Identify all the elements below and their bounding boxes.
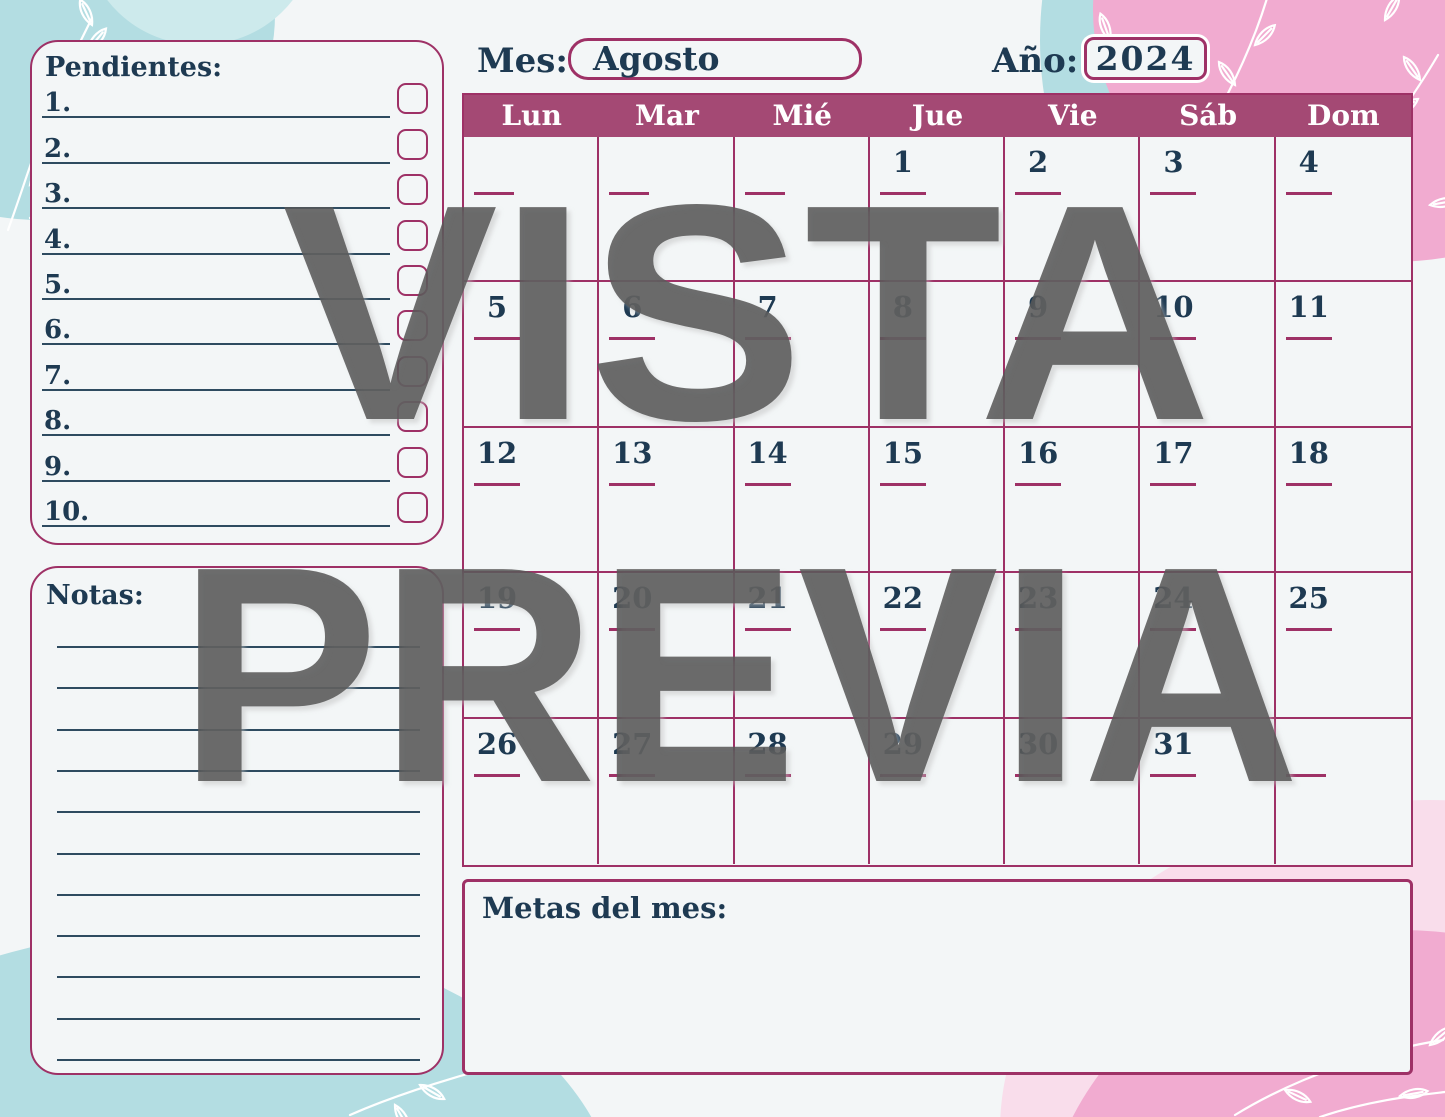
day-underline — [1015, 192, 1061, 195]
month-label: Mes: — [477, 44, 568, 78]
day-number: 13 — [609, 433, 655, 474]
calendar-day-cell[interactable]: 12 — [464, 428, 599, 573]
day-underline — [745, 337, 791, 340]
todo-item-checkbox[interactable] — [397, 174, 428, 205]
calendar-day-cell[interactable]: 18 — [1276, 428, 1411, 573]
todo-item-number: 7. — [44, 363, 71, 389]
calendar-day-cell[interactable]: 22 — [870, 573, 1005, 718]
weekday-header: Mar — [599, 95, 734, 137]
notes-panel-title: Notas: — [46, 580, 144, 611]
calendar-day-cell[interactable]: 3 — [1140, 137, 1275, 282]
calendar-day-cell[interactable]: 28 — [735, 719, 870, 864]
calendar-day-cell[interactable]: 30 — [1005, 719, 1140, 864]
todo-item-number: 9. — [44, 454, 71, 480]
day-number: 14 — [745, 433, 791, 474]
day-underline — [1015, 337, 1061, 340]
day-underline — [1150, 483, 1196, 486]
monthly-planner-page: Mes: Agosto Año: 2024 Pendientes: 1.2.3.… — [0, 0, 1445, 1117]
calendar-day-cell[interactable]: 8 — [870, 282, 1005, 427]
day-underline — [880, 337, 926, 340]
day-number: 18 — [1286, 433, 1332, 474]
calendar-day-cell[interactable]: 26 — [464, 719, 599, 864]
todo-item-checkbox[interactable] — [397, 129, 428, 160]
day-number: 22 — [880, 578, 926, 619]
calendar-day-cell[interactable]: 6 — [599, 282, 734, 427]
year-field[interactable]: 2024 — [1084, 37, 1207, 80]
day-underline — [474, 483, 520, 486]
calendar-grid: 1234567891011121314151617181920212223242… — [464, 137, 1411, 864]
year-label: Año: — [992, 44, 1078, 78]
day-underline — [1286, 483, 1332, 486]
day-number: 29 — [880, 724, 926, 765]
calendar-day-cell[interactable]: 1 — [870, 137, 1005, 282]
calendar-day-cell[interactable]: 20 — [599, 573, 734, 718]
todo-item: 10. — [42, 482, 428, 527]
day-number: 7 — [745, 287, 791, 328]
month-field[interactable]: Agosto — [568, 38, 862, 80]
notes-writing-line[interactable] — [57, 976, 420, 978]
todo-item: 2. — [42, 118, 428, 163]
day-number: 19 — [474, 578, 520, 619]
day-underline — [474, 774, 520, 777]
todo-item-number: 5. — [44, 272, 71, 298]
calendar-day-cell[interactable] — [1276, 719, 1411, 864]
day-underline — [880, 192, 926, 195]
day-underline — [474, 337, 520, 340]
calendar-day-cell[interactable]: 2 — [1005, 137, 1140, 282]
day-underline — [880, 774, 926, 777]
empty-day-line — [745, 192, 785, 195]
day-number: 31 — [1150, 724, 1196, 765]
calendar-day-cell[interactable]: 25 — [1276, 573, 1411, 718]
day-underline — [609, 628, 655, 631]
day-underline — [1286, 628, 1332, 631]
todo-item-number: 8. — [44, 408, 71, 434]
weekday-header: Sáb — [1140, 95, 1275, 137]
todo-item: 9. — [42, 436, 428, 481]
todo-item-checkbox[interactable] — [397, 220, 428, 251]
day-underline — [609, 337, 655, 340]
calendar-day-cell[interactable]: 27 — [599, 719, 734, 864]
todo-item-number: 10. — [44, 499, 89, 525]
calendar-day-cell[interactable]: 15 — [870, 428, 1005, 573]
day-number: 6 — [609, 287, 655, 328]
calendar-day-cell[interactable]: 17 — [1140, 428, 1275, 573]
calendar-day-cell[interactable]: 14 — [735, 428, 870, 573]
day-underline — [745, 483, 791, 486]
calendar-day-cell[interactable]: 24 — [1140, 573, 1275, 718]
day-number: 27 — [609, 724, 655, 765]
todo-item: 1. — [42, 73, 428, 118]
monthly-goals-title: Metas del mes: — [482, 891, 727, 925]
day-underline — [1150, 192, 1196, 195]
todo-item: 8. — [42, 391, 428, 436]
day-underline — [745, 628, 791, 631]
todo-item-writing-line[interactable] — [42, 525, 390, 527]
todo-item-number: 3. — [44, 181, 71, 207]
todo-item-checkbox[interactable] — [397, 310, 428, 341]
todo-item-checkbox[interactable] — [397, 265, 428, 296]
calendar-day-cell[interactable] — [599, 137, 734, 282]
calendar-day-cell[interactable]: 23 — [1005, 573, 1140, 718]
day-underline — [1150, 628, 1196, 631]
notes-writing-line[interactable] — [57, 729, 420, 731]
weekday-header: Vie — [1005, 95, 1140, 137]
weekday-header: Dom — [1276, 95, 1411, 137]
todo-list: 1.2.3.4.5.6.7.8.9.10. — [42, 73, 428, 527]
calendar-day-cell[interactable]: 13 — [599, 428, 734, 573]
day-underline — [474, 628, 520, 631]
day-underline — [1286, 337, 1332, 340]
day-underline — [1150, 337, 1196, 340]
calendar-day-cell[interactable]: 4 — [1276, 137, 1411, 282]
calendar-day-cell[interactable]: 16 — [1005, 428, 1140, 573]
calendar-day-cell[interactable] — [464, 137, 599, 282]
calendar-header-row: LunMarMiéJueVieSábDom — [464, 95, 1411, 137]
notes-writing-line[interactable] — [57, 853, 420, 855]
notes-writing-line[interactable] — [57, 811, 420, 813]
weekday-header: Lun — [464, 95, 599, 137]
todo-item: 6. — [42, 300, 428, 345]
day-number: 4 — [1286, 142, 1332, 183]
notes-writing-line[interactable] — [57, 894, 420, 896]
day-number: 21 — [745, 578, 791, 619]
todo-item-number: 1. — [44, 90, 71, 116]
calendar-day-cell[interactable]: 7 — [735, 282, 870, 427]
empty-day-line — [609, 192, 649, 195]
todo-item-number: 6. — [44, 317, 71, 343]
notes-writing-line[interactable] — [57, 935, 420, 937]
day-number: 20 — [609, 578, 655, 619]
day-underline — [1150, 774, 1196, 777]
day-number: 2 — [1015, 142, 1061, 183]
day-number: 23 — [1015, 578, 1061, 619]
todo-item: 3. — [42, 164, 428, 209]
day-number: 11 — [1286, 287, 1332, 328]
day-number: 24 — [1150, 578, 1196, 619]
empty-day-line — [474, 192, 514, 195]
calendar-day-cell[interactable]: 31 — [1140, 719, 1275, 864]
day-underline — [745, 774, 791, 777]
notes-panel: Notas: — [30, 566, 444, 1075]
day-underline — [880, 628, 926, 631]
todo-item-number: 4. — [44, 227, 71, 253]
todo-item-checkbox[interactable] — [397, 492, 428, 523]
weekday-header: Jue — [870, 95, 1005, 137]
day-underline — [1286, 192, 1332, 195]
day-number: 8 — [880, 287, 926, 328]
todo-item: 4. — [42, 209, 428, 254]
calendar-day-cell[interactable]: 10 — [1140, 282, 1275, 427]
day-number: 16 — [1015, 433, 1061, 474]
todo-panel: Pendientes: 1.2.3.4.5.6.7.8.9.10. — [30, 40, 444, 545]
day-underline — [1015, 628, 1061, 631]
todo-item-checkbox[interactable] — [397, 401, 428, 432]
notes-writing-line[interactable] — [57, 770, 420, 772]
calendar-day-cell[interactable]: 19 — [464, 573, 599, 718]
calendar: LunMarMiéJueVieSábDom 123456789101112131… — [462, 93, 1413, 867]
todo-item-number: 2. — [44, 136, 71, 162]
notes-writing-line[interactable] — [57, 1059, 420, 1061]
monthly-goals-panel[interactable]: Metas del mes: — [462, 879, 1413, 1075]
empty-day-line — [1286, 774, 1326, 777]
notes-writing-line[interactable] — [57, 1018, 420, 1020]
day-underline — [1015, 774, 1061, 777]
weekday-header: Mié — [735, 95, 870, 137]
day-number: 9 — [1015, 287, 1061, 328]
day-underline — [609, 483, 655, 486]
calendar-day-cell[interactable]: 21 — [735, 573, 870, 718]
day-number: 15 — [880, 433, 926, 474]
day-number: 28 — [745, 724, 791, 765]
day-number: 3 — [1150, 142, 1196, 183]
todo-item: 7. — [42, 345, 428, 390]
day-number: 17 — [1150, 433, 1196, 474]
day-number: 10 — [1150, 287, 1196, 328]
day-underline — [609, 774, 655, 777]
day-underline — [1015, 483, 1061, 486]
day-underline — [880, 483, 926, 486]
day-number: 5 — [474, 287, 520, 328]
calendar-day-cell[interactable]: 29 — [870, 719, 1005, 864]
day-number: 12 — [474, 433, 520, 474]
todo-item-checkbox[interactable] — [397, 356, 428, 387]
day-number: 25 — [1286, 578, 1332, 619]
todo-item: 5. — [42, 255, 428, 300]
calendar-day-cell[interactable]: 9 — [1005, 282, 1140, 427]
todo-item-checkbox[interactable] — [397, 83, 428, 114]
notes-writing-line[interactable] — [57, 646, 420, 648]
notes-writing-line[interactable] — [57, 687, 420, 689]
calendar-day-cell[interactable]: 5 — [464, 282, 599, 427]
day-number: 1 — [880, 142, 926, 183]
calendar-day-cell[interactable] — [735, 137, 870, 282]
day-number: 26 — [474, 724, 520, 765]
day-number: 30 — [1015, 724, 1061, 765]
calendar-day-cell[interactable]: 11 — [1276, 282, 1411, 427]
todo-item-checkbox[interactable] — [397, 447, 428, 478]
